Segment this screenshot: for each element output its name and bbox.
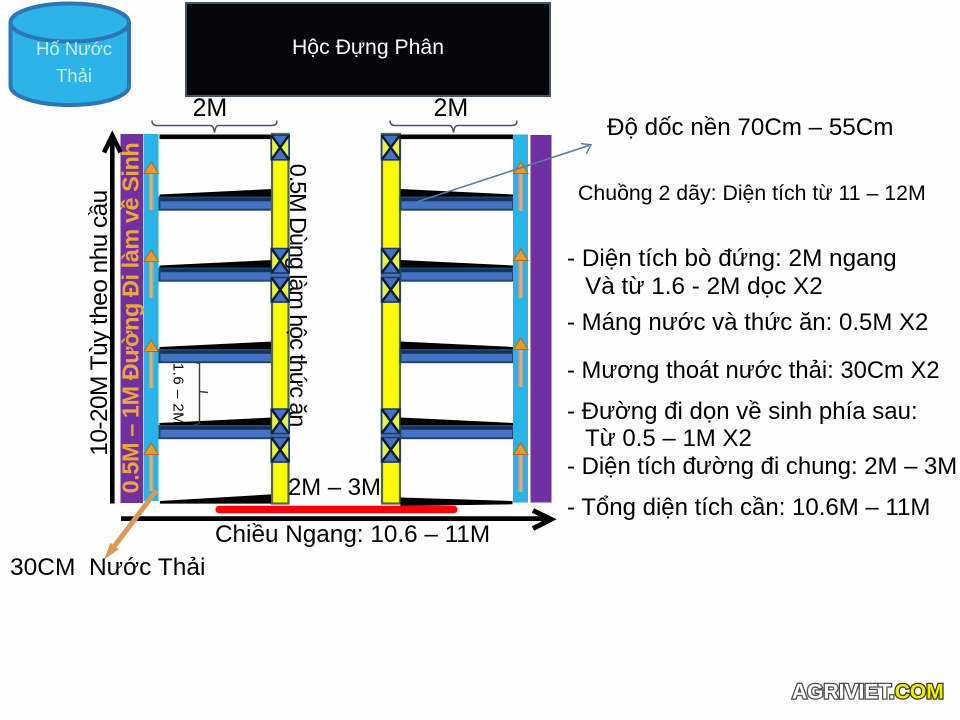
svg-text:AGRIVIET.COM: AGRIVIET.COM: [792, 681, 944, 704]
